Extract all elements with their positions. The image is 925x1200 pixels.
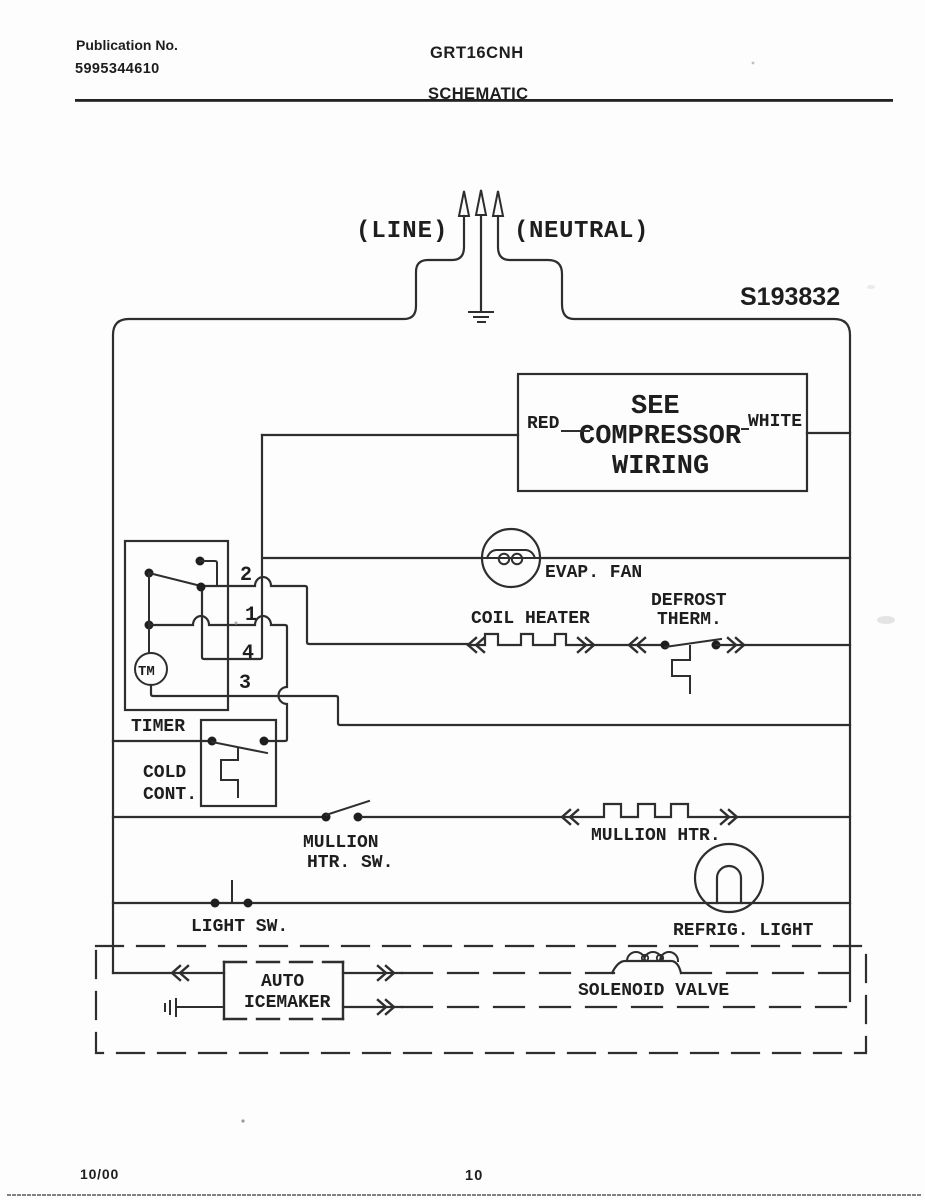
svg-text:(LINE): (LINE) [356,218,448,245]
svg-text:RED: RED [527,414,560,434]
svg-text:COLD: COLD [143,763,186,783]
svg-text:1: 1 [245,604,257,627]
svg-text:CONT.: CONT. [143,785,197,805]
svg-text:10/00: 10/00 [80,1166,119,1182]
svg-text:COMPRESSOR: COMPRESSOR [579,422,742,452]
svg-text:S193832: S193832 [740,283,840,311]
svg-text:COIL HEATER: COIL HEATER [471,609,590,629]
svg-text:WHITE: WHITE [748,412,802,432]
svg-text:REFRIG. LIGHT: REFRIG. LIGHT [673,921,814,941]
svg-text:WIRING: WIRING [612,452,709,482]
svg-text:TIMER: TIMER [131,717,185,737]
svg-text:AUTO: AUTO [261,972,304,992]
svg-text:ICEMAKER: ICEMAKER [244,993,331,1013]
svg-text:SEE: SEE [631,392,680,422]
svg-text:THERM.: THERM. [657,610,722,630]
svg-text:HTR. SW.: HTR. SW. [307,853,393,873]
svg-text:TM: TM [138,664,155,680]
svg-text:MULLION HTR.: MULLION HTR. [591,826,721,846]
svg-text:LIGHT SW.: LIGHT SW. [191,917,288,937]
svg-text:5995344610: 5995344610 [75,61,160,77]
svg-text:DEFROST: DEFROST [651,591,727,611]
svg-text:GRT16CNH: GRT16CNH [430,44,524,62]
svg-text:SOLENOID VALVE: SOLENOID VALVE [578,981,729,1001]
svg-text:MULLION: MULLION [303,833,379,853]
svg-text:Publication No.: Publication No. [76,37,178,53]
svg-text:3: 3 [239,672,251,695]
svg-text:(NEUTRAL): (NEUTRAL) [514,218,649,245]
svg-text:4: 4 [242,642,254,665]
svg-text:10: 10 [465,1168,484,1184]
svg-text:2: 2 [240,564,252,587]
svg-text:EVAP. FAN: EVAP. FAN [545,563,642,583]
